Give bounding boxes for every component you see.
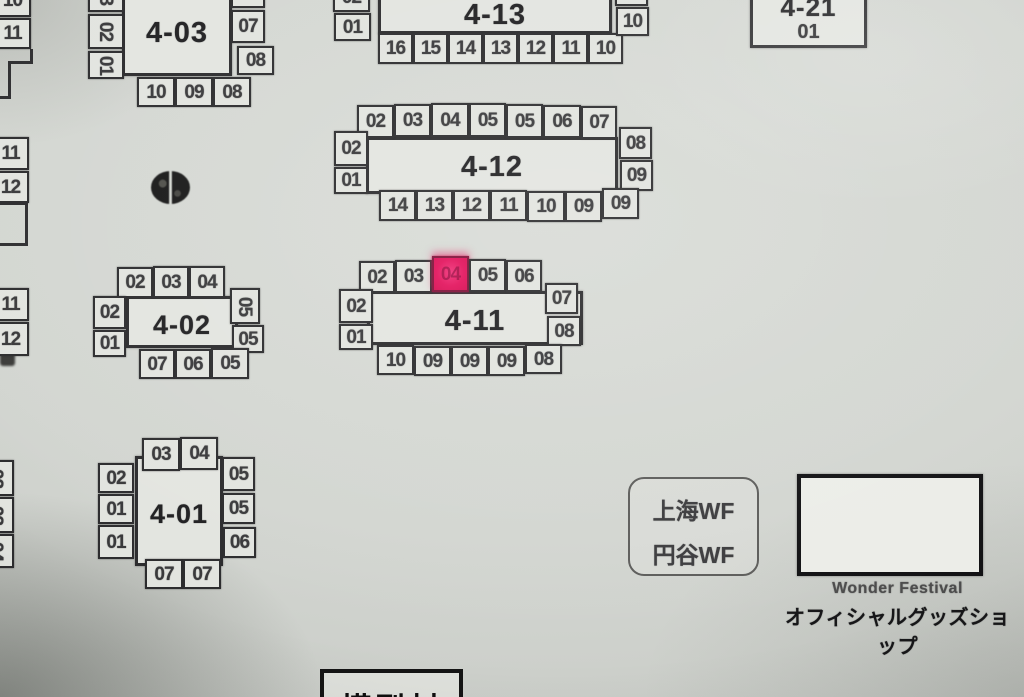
seat-number: 02 <box>96 22 115 41</box>
seat-number: 06 <box>183 355 202 374</box>
seat-number: 02 <box>342 0 361 7</box>
seat-number: 07 <box>154 565 173 584</box>
booth-seat: 01 <box>334 13 371 41</box>
venue-map-photo: 上海WF 円谷WF Wonder Festival オフィシャルグッズショップ … <box>0 0 1024 697</box>
seat-number: 08 <box>246 51 265 70</box>
seat-number: 05 <box>229 465 248 484</box>
seat-number: 04 <box>440 111 459 130</box>
booth-seat: 06 <box>543 105 581 138</box>
booth-seat: 02 <box>88 14 124 49</box>
booth-seat: 08 <box>619 127 652 159</box>
booth-seat: 06 <box>506 260 542 292</box>
block-4-13: 4-13 <box>378 0 612 34</box>
booth-seat: 04 <box>189 266 225 298</box>
booth-seat: 12 <box>518 33 553 64</box>
seat-number: 05 <box>478 266 497 285</box>
booth-seat: 01 <box>334 167 368 194</box>
official-shop-rect <box>797 474 983 576</box>
block-4-02: 4-02 <box>126 296 238 348</box>
booth-seat: 10 <box>377 345 414 375</box>
block-title: 4-02 <box>129 309 235 341</box>
seat-number: 09 <box>460 352 479 371</box>
seat-number: 06 <box>514 267 533 286</box>
booth-seat: 02 <box>333 0 370 12</box>
booth-seat: 05 <box>222 493 255 524</box>
booth-seat: 04 <box>180 437 218 470</box>
booth-seat: 03 <box>395 260 432 293</box>
seat-number: 15 <box>421 39 440 58</box>
seat-number: 02 <box>100 303 119 322</box>
seat-number: 10 <box>623 12 642 31</box>
booth-seat: 08 <box>525 344 562 374</box>
seat-number: 05 <box>235 296 254 315</box>
seat-number: 16 <box>386 39 405 58</box>
seat-number: 05 <box>229 499 248 518</box>
seat-number: 02 <box>366 112 385 131</box>
block-4-01: 4-01 <box>135 456 223 566</box>
block-4-21: 4-2101 <box>750 0 867 48</box>
booth-seat: 01 <box>88 51 124 79</box>
seat-number: 02 <box>346 297 365 316</box>
shop-caption-jp: オフィシャルグッズショップ <box>775 601 1020 659</box>
seat-number: 01 <box>100 334 119 353</box>
seat-number: 07 <box>589 113 608 132</box>
booth-seat: 09 <box>602 188 639 219</box>
seat-number: 02 <box>106 469 125 488</box>
seat-number: 07 <box>192 565 211 584</box>
seat-number: 14 <box>456 39 475 58</box>
booth-seat: 07 <box>545 283 578 314</box>
seat-number: 09 <box>497 352 516 371</box>
booth-seat: 01 <box>339 324 373 350</box>
seat-number: 11 <box>499 196 517 215</box>
seat-number: 02 <box>341 139 360 158</box>
booth-seat: 07 <box>183 559 221 589</box>
booth-seat: 02 <box>0 460 14 496</box>
booth-seat: 09 <box>451 346 488 376</box>
booth-seat: 02 <box>93 296 126 329</box>
seat-number: 14 <box>388 196 407 215</box>
seat-number: 08 <box>554 322 573 341</box>
seat-number: 03 <box>0 505 5 524</box>
booth-seat: 16 <box>378 33 413 64</box>
booth-seat: 06 <box>175 349 211 379</box>
booth-seat: 10 <box>616 7 649 36</box>
partial-outline <box>0 202 28 246</box>
seat-number: 07 <box>238 17 257 36</box>
seat-number: 12 <box>1 178 20 197</box>
booth-seat: 07 <box>581 106 617 139</box>
booth-seat: 02 <box>339 289 373 323</box>
seat-number: 03 <box>151 445 170 464</box>
seat-number: 01 <box>346 328 365 347</box>
booth-seat: 13 <box>416 190 453 221</box>
booth-seat: 06 <box>231 0 265 8</box>
legend-box: 上海WF 円谷WF <box>628 477 759 576</box>
seat-number: 09 <box>184 83 203 102</box>
partial-bottom-block: 模型村 <box>320 669 463 697</box>
seat-number: 03 <box>96 0 115 5</box>
booth-seat: 09 <box>175 77 213 107</box>
booth-seat: 07 <box>139 349 175 379</box>
seat-number: 10 <box>386 351 405 370</box>
seat-number: 11 <box>1 295 19 314</box>
seat-number: 11 <box>1 144 19 163</box>
seat-number: 06 <box>552 112 571 131</box>
seat-number: 05 <box>238 330 257 349</box>
block-title: 4-01 <box>138 498 220 530</box>
booth-seat: 09 <box>615 0 648 6</box>
seat-number: 12 <box>462 196 481 215</box>
block-title: 4-21 <box>753 0 864 23</box>
seat-number: 10 <box>146 83 165 102</box>
booth-seat: 10 <box>137 77 175 107</box>
booth-seat: 03 <box>153 266 189 298</box>
booth-seat: 03 <box>394 104 431 137</box>
legend-tsuburaya-wf: 円谷WF <box>630 536 757 570</box>
booth-seat: 05 <box>222 457 255 491</box>
seat-number: 01 <box>106 500 125 519</box>
booth-seat: 10 <box>588 33 623 64</box>
booth-seat: 10 <box>0 0 31 17</box>
booth-seat: 10 <box>527 191 565 222</box>
seat-number: 04 <box>441 265 460 284</box>
booth-seat: 03 <box>142 438 180 471</box>
seat-number: 06 <box>238 0 257 3</box>
seat-number: 01 <box>341 171 360 190</box>
booth-seat: 12 <box>0 171 29 203</box>
booth-seat: 05 <box>230 288 260 324</box>
seat-number: 08 <box>534 350 553 369</box>
seat-number: 12 <box>526 39 545 58</box>
booth-seat: 14 <box>379 190 416 221</box>
booth-seat: 03 <box>88 0 124 12</box>
seat-number: 05 <box>478 111 497 130</box>
partial-outline <box>0 96 11 99</box>
booth-seat: 02 <box>334 131 368 166</box>
booth-map: 上海WF 円谷WF Wonder Festival オフィシャルグッズショップ … <box>0 0 1024 697</box>
booth-seat: 09 <box>565 191 602 222</box>
seat-number: 10 <box>596 39 615 58</box>
partial-outline <box>8 61 11 99</box>
booth-seat: 13 <box>483 33 518 64</box>
seat-number: 01 <box>96 55 115 74</box>
booth-seat: 11 <box>553 33 588 64</box>
bottom-block-label: 模型村 <box>324 684 459 697</box>
seat-number: 12 <box>1 330 20 349</box>
booth-seat: 12 <box>453 190 490 221</box>
seat-number: 09 <box>611 194 630 213</box>
seat-number: 03 <box>404 267 423 286</box>
seat-number: 09 <box>574 197 593 216</box>
seat-number: 13 <box>491 39 510 58</box>
booth-seat: 07 <box>231 10 265 43</box>
seat-number: 04 <box>197 273 216 292</box>
seat-number: 08 <box>222 83 241 102</box>
seat-number: 02 <box>367 268 386 287</box>
seat-number: 02 <box>125 273 144 292</box>
booth-seat: 05 <box>506 104 543 138</box>
booth-seat: 08 <box>237 46 274 75</box>
seat-number: 01 <box>106 533 125 552</box>
block-4-12: 4-12 <box>366 137 618 194</box>
pillar-icon <box>151 171 190 204</box>
booth-seat: 04 <box>0 534 14 568</box>
booth-seat: 01 <box>98 494 134 524</box>
block-title: 4-13 <box>381 0 609 31</box>
seat-number: 03 <box>161 273 180 292</box>
seat-number: 08 <box>626 134 645 153</box>
seat-number: 04 <box>189 444 208 463</box>
booth-seat: 02 <box>117 267 153 298</box>
booth-seat: 08 <box>213 77 251 107</box>
booth-seat: 11 <box>0 288 29 321</box>
booth-seat-highlighted: 04 <box>432 256 469 292</box>
booth-seat: 01 <box>98 525 134 559</box>
seat-number: 05 <box>515 112 534 131</box>
legend-shanghai-wf: 上海WF <box>630 492 757 526</box>
booth-seat: 11 <box>490 190 527 221</box>
seat-number: 06 <box>230 533 249 552</box>
seat-number: 09 <box>627 166 646 185</box>
block-title: 4-12 <box>369 151 615 183</box>
seat-number: 11 <box>3 24 21 43</box>
booth-seat: 04 <box>431 103 469 137</box>
booth-seat: 05 <box>469 103 506 137</box>
booth-seat: 03 <box>0 497 14 533</box>
shop-caption-en: Wonder Festival <box>790 580 1005 598</box>
booth-seat: 12 <box>0 322 29 356</box>
seat-number: 13 <box>425 196 444 215</box>
block-4-03: 4-03 <box>122 0 232 76</box>
seat-number: 10 <box>3 0 22 10</box>
seat-number: 04 <box>0 541 5 560</box>
booth-seat: 02 <box>98 463 134 493</box>
booth-seat: 08 <box>547 316 581 346</box>
seat-number: 09 <box>423 352 442 371</box>
seat-number: 01 <box>343 18 362 37</box>
seat-number: 03 <box>403 111 422 130</box>
booth-seat: 05 <box>469 259 506 292</box>
booth-seat: 14 <box>448 33 483 64</box>
booth-seat: 07 <box>145 559 183 589</box>
booth-seat: 09 <box>414 346 451 376</box>
booth-seat: 06 <box>223 527 256 558</box>
block-title: 4-03 <box>125 17 229 49</box>
booth-seat: 05 <box>211 348 249 379</box>
seat-number: 10 <box>536 197 555 216</box>
seat-number: 07 <box>552 289 571 308</box>
booth-seat: 09 <box>620 160 653 191</box>
booth-seat: 01 <box>93 330 126 357</box>
booth-seat: 11 <box>0 137 29 170</box>
block-sub-number: 01 <box>753 21 864 43</box>
partial-outline <box>8 61 33 64</box>
seat-number: 09 <box>622 0 641 2</box>
seat-number: 05 <box>220 354 239 373</box>
booth-seat: 09 <box>488 346 525 376</box>
seat-number: 02 <box>0 468 5 487</box>
seat-number: 07 <box>147 355 166 374</box>
booth-seat: 15 <box>413 33 448 64</box>
seat-number: 11 <box>561 39 579 58</box>
booth-seat: 11 <box>0 18 31 49</box>
